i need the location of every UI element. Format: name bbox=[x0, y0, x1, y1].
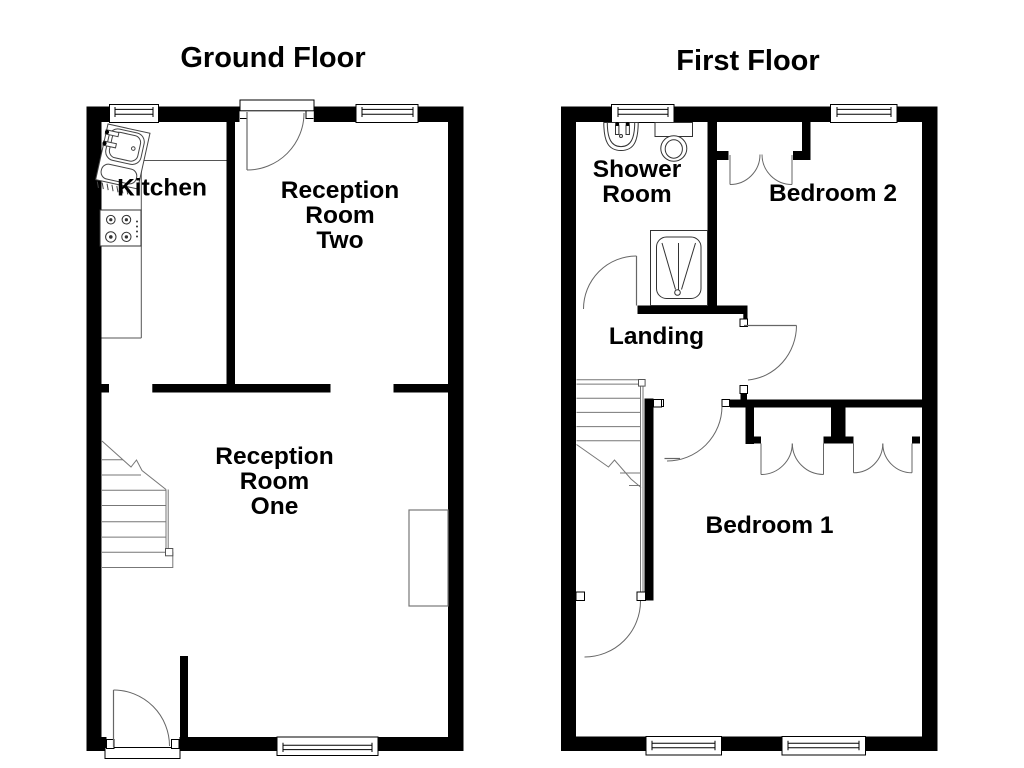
svg-text:Bedroom 2: Bedroom 2 bbox=[769, 180, 897, 207]
svg-text:One: One bbox=[251, 493, 299, 520]
svg-text:Reception: Reception bbox=[281, 177, 399, 204]
svg-text:Room: Room bbox=[240, 468, 309, 495]
svg-text:Ground Floor: Ground Floor bbox=[180, 42, 365, 74]
svg-text:Bedroom 1: Bedroom 1 bbox=[706, 512, 834, 539]
svg-text:Shower: Shower bbox=[593, 156, 682, 183]
svg-text:Room: Room bbox=[305, 202, 374, 229]
svg-text:Landing: Landing bbox=[609, 323, 704, 350]
svg-text:Room: Room bbox=[602, 181, 671, 208]
svg-text:Reception: Reception bbox=[215, 443, 333, 470]
svg-text:Two: Two bbox=[316, 227, 363, 254]
svg-text:Kitchen: Kitchen bbox=[117, 175, 207, 202]
svg-text:First Floor: First Floor bbox=[676, 45, 819, 77]
